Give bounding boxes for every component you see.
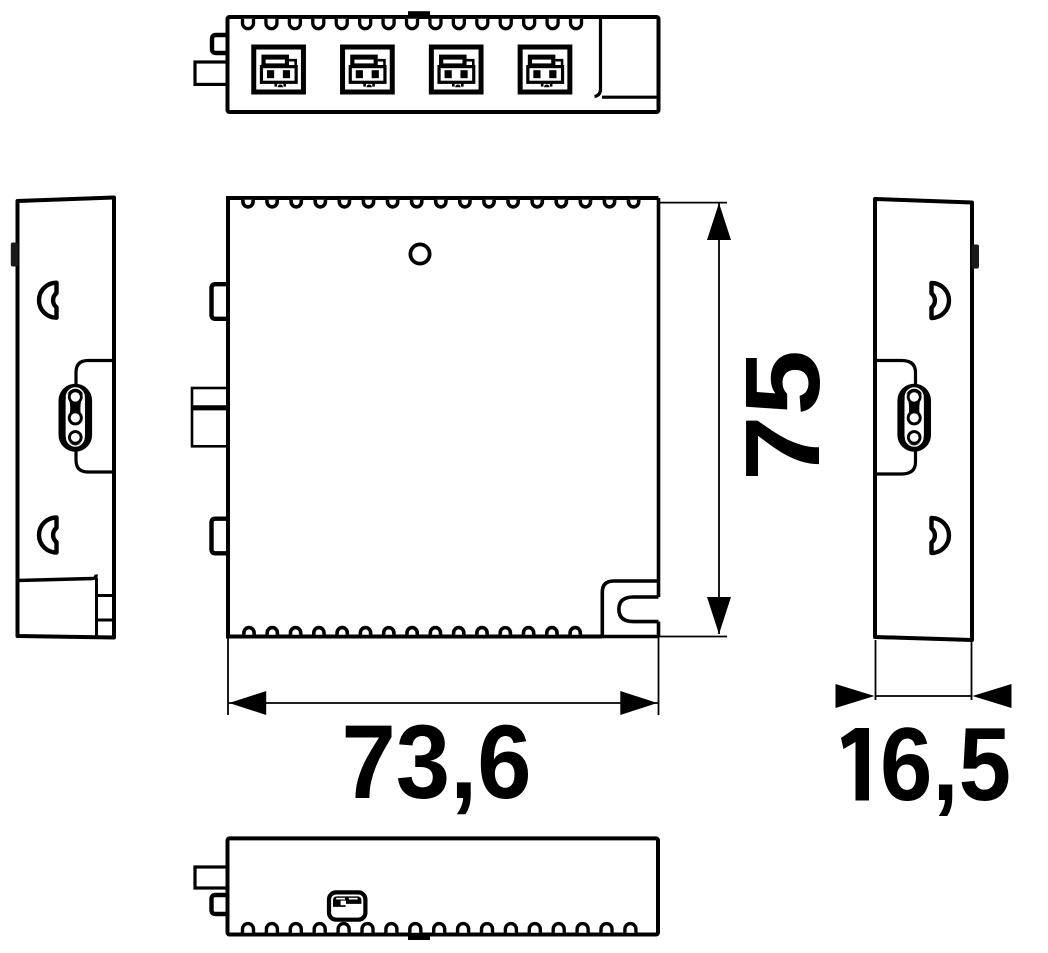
svg-text:75: 75 xyxy=(724,350,842,481)
svg-text:73,6: 73,6 xyxy=(342,704,532,821)
svg-text:6,5: 6,5 xyxy=(880,707,1011,823)
